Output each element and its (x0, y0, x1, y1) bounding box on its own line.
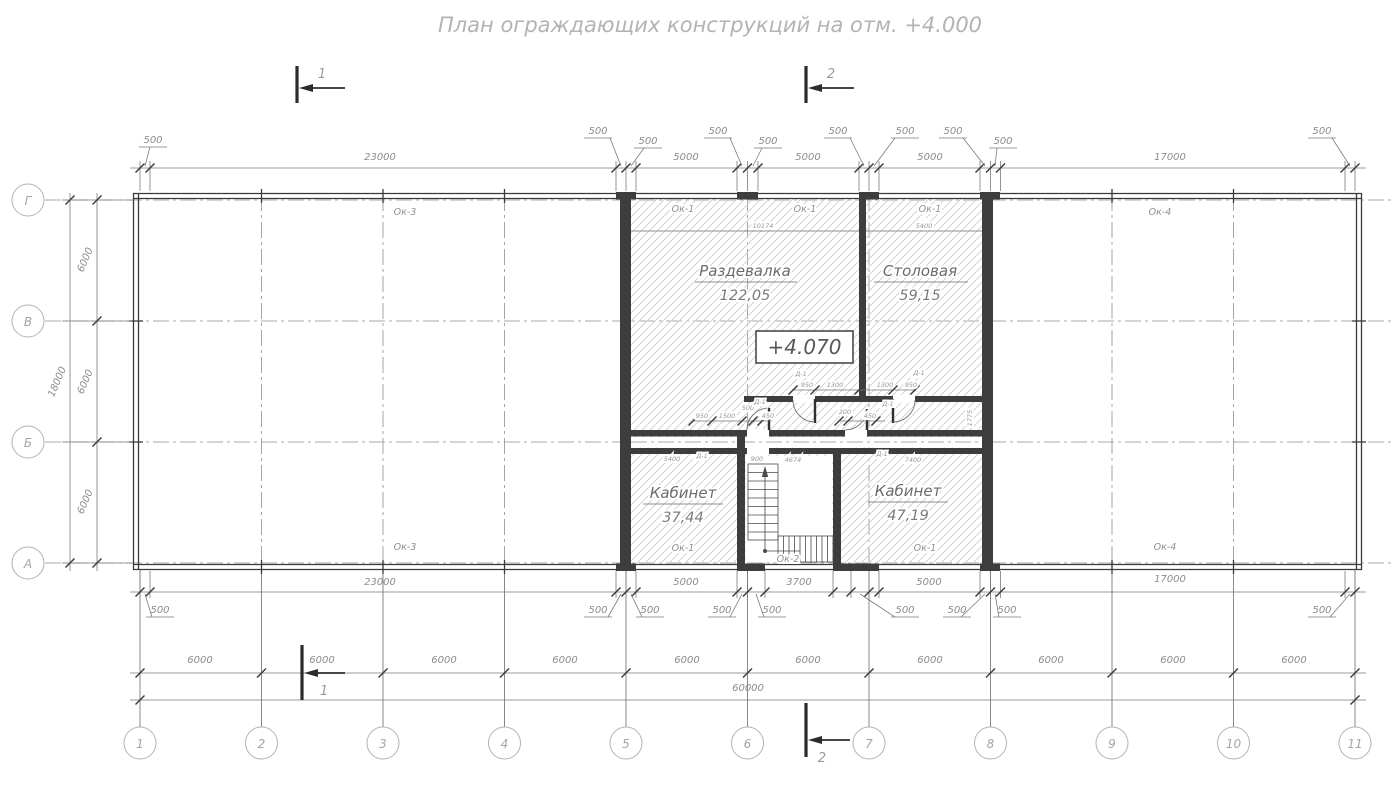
floor-plan-canvas: План ограждающих конструкций на отм. +4.… (0, 0, 1400, 788)
dim-10174: 10174 (753, 222, 774, 230)
dim-bot-500-5: 500 (762, 605, 781, 616)
dim-bot-500-3: 500 (640, 605, 659, 616)
dim-60000: 60000 (732, 683, 764, 694)
room-area-kabinet2: 47,19 (887, 508, 929, 524)
door-mark-d1-a: Д-1 (794, 370, 807, 378)
dimension-chain-left: 6000 6000 6000 18000 (46, 193, 132, 571)
dim-bottom-17000: 17000 (1154, 574, 1186, 585)
dim-top-500-3: 500 (638, 136, 657, 147)
dim-1775: 1775 (966, 410, 974, 427)
axis-row-a: А (23, 557, 32, 571)
top-extension-lines (140, 161, 1355, 191)
dim-top-500-7: 500 (895, 126, 914, 137)
dim-200: 200 (839, 408, 851, 416)
room-name-stolovaya: Столовая (883, 262, 957, 280)
door-mark-d1-e: Д-1 (695, 452, 708, 460)
dim-left-6000-1: 6000 (76, 246, 96, 274)
dim-6000-9: 6000 (1160, 655, 1185, 666)
dim-7400: 7400 (905, 456, 922, 464)
dim-6000-2: 6000 (309, 655, 334, 666)
window-mark-ok3-top: Ок-3 (394, 207, 417, 218)
section-label-1-top: 1 (318, 67, 326, 82)
dim-450-b: 450 (864, 412, 876, 420)
dim-1300-b: 1300 (877, 381, 894, 389)
axis-row-v: В (24, 315, 32, 329)
dim-950-b: 950 (905, 381, 917, 389)
drawing-sheet: { "title": "План ограждающих конструкций… (0, 0, 1400, 788)
section-marker-1-top: 1 (297, 66, 345, 103)
room-name-razdevalka: Раздевалка (699, 262, 791, 280)
dim-6000-5: 6000 (674, 655, 699, 666)
room-name-kabinet1: Кабинет (650, 484, 718, 502)
dim-left-18000: 18000 (46, 365, 69, 399)
stair-dim-900: 900 (751, 455, 763, 463)
elevation-mark: +4.070 (756, 331, 853, 363)
window-mark-ok4-bottom: Ок-4 (1154, 542, 1177, 553)
dim-bot-500-6: 500 (895, 605, 914, 616)
dim-4674: 4674 (785, 456, 802, 464)
dim-6000-4: 6000 (552, 655, 577, 666)
dim-950-c: 950 (696, 412, 708, 420)
dim-top-5000-c: 5000 (917, 152, 942, 163)
window-mark-ok4-top: Ок-4 (1149, 207, 1172, 218)
section-label-1-bottom: 1 (320, 684, 328, 699)
dim-bot-500-4: 500 (712, 605, 731, 616)
section-marker-2-bottom: 2 (806, 703, 850, 766)
window-mark-ok1-a: Ок-1 (672, 204, 695, 215)
window-mark-ok1-b: Ок-1 (794, 204, 817, 215)
dim-bot-500-9: 500 (1312, 605, 1331, 616)
window-mark-ok1-c: Ок-1 (919, 204, 942, 215)
axis-col-2: 2 (258, 737, 266, 751)
dim-top-500-2: 500 (588, 126, 607, 137)
drawing-title: План ограждающих конструкций на отм. +4.… (438, 13, 982, 37)
window-mark-ok1-e: Ок-1 (914, 543, 937, 554)
door-mark-d1-c: Д-1 (753, 398, 766, 406)
dim-top-500-10: 500 (1312, 126, 1331, 137)
dim-6000-10: 6000 (1281, 655, 1306, 666)
dim-5400-top: 5400 (916, 222, 933, 230)
dim-top-23000: 23000 (364, 152, 396, 163)
door-mark-d1-d: Д-1 (881, 400, 894, 408)
dim-top-500-4: 500 (708, 126, 727, 137)
dim-bottom-5000-a: 5000 (673, 577, 698, 588)
dimension-chain-bottom: 23000 5000 3700 5000 17000 500 500 500 5… (130, 571, 1366, 617)
staircase: 900 (746, 455, 833, 562)
axis-bubbles-rows: Г В Б А (12, 184, 44, 579)
dim-bot-500-2: 500 (588, 605, 607, 616)
axis-col-4: 4 (501, 737, 509, 751)
dim-top-500-5: 500 (758, 136, 777, 147)
dim-1500: 1500 (719, 412, 736, 420)
dim-6000-3: 6000 (431, 655, 456, 666)
room-name-kabinet2: Кабинет (875, 482, 943, 500)
dimension-chain-top: 23000 5000 5000 5000 17000 500 500 500 5… (130, 126, 1366, 191)
dim-1300-a: 1300 (827, 381, 844, 389)
section-marker-1-bottom: 1 (302, 645, 345, 700)
dim-bot-500-8: 500 (997, 605, 1016, 616)
axis-row-b: Б (24, 436, 32, 450)
dim-6000-7: 6000 (917, 655, 942, 666)
dim-bottom-23000: 23000 (364, 577, 396, 588)
axis-col-5: 5 (622, 737, 630, 751)
door-mark-d1-f: Д-1 (875, 450, 888, 458)
elevation-value: +4.070 (767, 335, 841, 359)
dim-6000-6: 6000 (795, 655, 820, 666)
dim-bottom-3700: 3700 (786, 577, 811, 588)
axis-col-1: 1 (136, 737, 144, 751)
section-label-2-bottom: 2 (818, 751, 826, 766)
dim-5400-corr: 5400 (664, 455, 681, 463)
window-mark-ok1-d: Ок-1 (672, 543, 695, 554)
dim-top-5000-a: 5000 (673, 152, 698, 163)
dim-left-6000-2: 6000 (76, 368, 96, 396)
dim-top-17000: 17000 (1154, 152, 1186, 163)
dim-bottom-5000-b: 5000 (916, 577, 941, 588)
room-area-stolovaya: 59,15 (899, 288, 941, 304)
dim-450-a: 450 (762, 412, 774, 420)
room-area-razdevalka: 122,05 (720, 288, 771, 304)
dim-6000-8: 6000 (1038, 655, 1063, 666)
dim-top-500-1: 500 (143, 135, 162, 146)
axis-col-10: 10 (1226, 737, 1242, 751)
dimension-chain-modules: 6000 6000 6000 6000 6000 6000 6000 6000 … (130, 655, 1366, 705)
axis-col-3: 3 (379, 737, 387, 751)
dim-left-6000-3: 6000 (76, 488, 96, 516)
dim-top-500-9: 500 (993, 136, 1012, 147)
section-marker-2-top: 2 (806, 66, 854, 103)
dim-500-sm: 500 (742, 404, 754, 412)
axis-col-7: 7 (865, 737, 873, 751)
dim-top-5000-b: 5000 (795, 152, 820, 163)
door-mark-d1-b: Д-1 (912, 369, 925, 377)
section-label-2-top: 2 (827, 67, 835, 82)
axis-col-8: 8 (987, 737, 995, 751)
dim-top-500-8: 500 (943, 126, 962, 137)
dim-6000-1: 6000 (187, 655, 212, 666)
axis-bubbles-columns: 1 2 3 4 5 6 7 8 9 10 11 (124, 727, 1371, 759)
axis-col-11: 11 (1347, 737, 1362, 751)
dim-top-500-6: 500 (828, 126, 847, 137)
window-mark-ok3-bottom: Ок-3 (394, 542, 417, 553)
window-mark-ok2: Ок-2 (777, 554, 800, 565)
axis-col-6: 6 (744, 737, 752, 751)
room-area-kabinet1: 37,44 (662, 510, 704, 526)
dim-950-a: 950 (801, 381, 813, 389)
axis-col-9: 9 (1108, 737, 1116, 751)
dim-bot-500-1: 500 (150, 605, 169, 616)
